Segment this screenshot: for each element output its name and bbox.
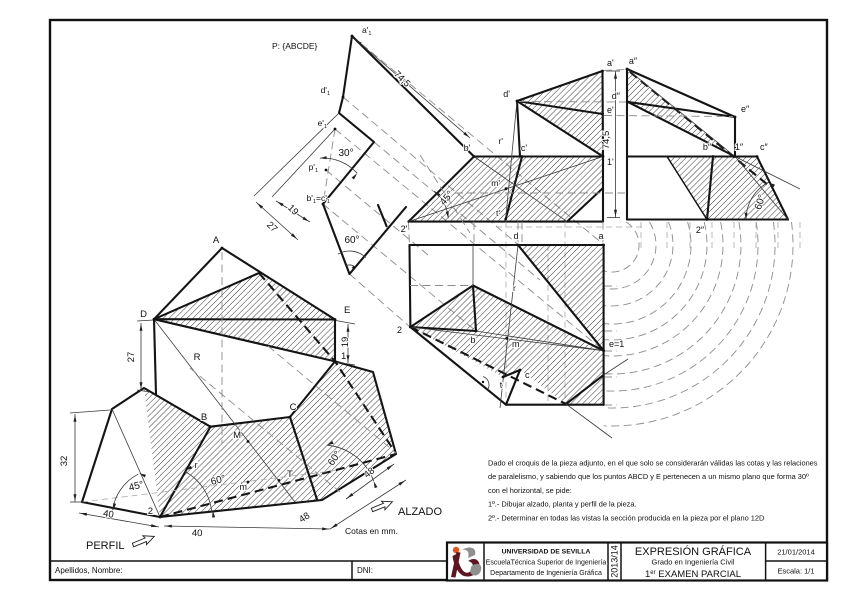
svg-text:D: D	[140, 309, 147, 320]
svg-text:Departamento de Ingeniería Grá: Departamento de Ingeniería Gráfica	[490, 570, 602, 577]
svg-text:m: m	[512, 339, 520, 349]
svg-text:b″: b″	[703, 142, 712, 152]
svg-text:2013/14: 2013/14	[610, 545, 620, 578]
svg-text:r': r'	[499, 136, 504, 146]
svg-text:PERFIL: PERFIL	[86, 540, 125, 552]
svg-text:2″: 2″	[696, 225, 705, 235]
svg-text:c': c'	[521, 143, 528, 153]
svg-text:b': b'	[464, 143, 471, 153]
svg-text:e=1: e=1	[609, 339, 624, 349]
svg-text:19: 19	[340, 337, 351, 348]
svg-text:EXPRESIÓN GRÁFICA: EXPRESIÓN GRÁFICA	[635, 545, 752, 558]
svg-text:e': e'	[607, 105, 614, 115]
svg-text:r: r	[513, 283, 516, 293]
svg-text:B: B	[201, 412, 207, 423]
svg-text:2': 2'	[401, 224, 408, 234]
svg-text:21/01/2014: 21/01/2014	[777, 548, 815, 557]
svg-text:A: A	[213, 235, 220, 246]
svg-text:2: 2	[148, 506, 153, 517]
svg-text:e″: e″	[741, 104, 750, 114]
svg-text:2: 2	[397, 325, 402, 335]
svg-text:T: T	[287, 469, 293, 480]
svg-text:2º.- Determinar en todas las v: 2º.- Determinar en todas las vistas la s…	[488, 513, 764, 522]
svg-text:Dado el croquis de la pieza ad: Dado el croquis de la pieza adjunto, en …	[488, 459, 818, 468]
svg-text:27: 27	[126, 352, 137, 363]
svg-text:c: c	[525, 370, 530, 380]
svg-text:40: 40	[102, 508, 114, 521]
svg-text:74,5: 74,5	[601, 131, 612, 150]
svg-text:1º.- Dibujar alzado, planta y: 1º.- Dibujar alzado, planta y perfil de …	[488, 500, 637, 509]
svg-text:1: 1	[341, 351, 346, 362]
svg-text:EscuelaTécnica Superior de Ing: EscuelaTécnica Superior de Ingeniería	[486, 560, 607, 567]
svg-text:Apellidos, Nombre:: Apellidos, Nombre:	[55, 566, 123, 575]
svg-text:40: 40	[192, 528, 203, 539]
svg-text:m: m	[240, 482, 248, 492]
svg-text:E: E	[344, 305, 350, 316]
svg-text:c″: c″	[760, 142, 769, 152]
svg-text:m': m'	[491, 178, 500, 188]
svg-text:a″: a″	[629, 56, 638, 66]
svg-text:d': d'	[503, 89, 510, 99]
svg-text:1er EXAMEN PARCIAL: 1er EXAMEN PARCIAL	[645, 569, 741, 580]
svg-text:Escala: 1/1: Escala: 1/1	[777, 567, 814, 576]
svg-text:ALZADO: ALZADO	[398, 506, 442, 518]
svg-text:r: r	[195, 460, 198, 470]
svg-text:M: M	[233, 430, 241, 441]
svg-text:1″: 1″	[735, 142, 744, 152]
svg-text:UNIVERSIDAD DE SEVILLA: UNIVERSIDAD DE SEVILLA	[502, 549, 591, 556]
svg-text:b: b	[470, 335, 475, 345]
svg-text:Cotas en mm.: Cotas en mm.	[345, 526, 398, 536]
svg-text:1': 1'	[607, 157, 614, 167]
svg-text:con el horizontal, se pide:: con el horizontal, se pide:	[488, 486, 572, 495]
svg-text:60°: 60°	[344, 235, 359, 246]
svg-text:a': a'	[607, 58, 614, 68]
svg-text:C: C	[290, 402, 297, 413]
svg-text:DNI:: DNI:	[357, 566, 373, 575]
svg-text:t': t'	[496, 208, 500, 218]
svg-text:P: {ABCDE}: P: {ABCDE}	[272, 41, 318, 51]
svg-text:30°: 30°	[338, 148, 353, 159]
svg-text:32: 32	[59, 456, 70, 467]
svg-text:d: d	[513, 231, 518, 241]
svg-text:R: R	[194, 352, 201, 363]
svg-text:Grado en Ingeniería Civil: Grado en Ingeniería Civil	[652, 558, 735, 567]
svg-text:d″: d″	[612, 91, 621, 101]
svg-text:de paralelismo, y sabiendo que: de paralelismo, y sabiendo que los punto…	[488, 472, 809, 481]
svg-text:a: a	[598, 231, 603, 241]
